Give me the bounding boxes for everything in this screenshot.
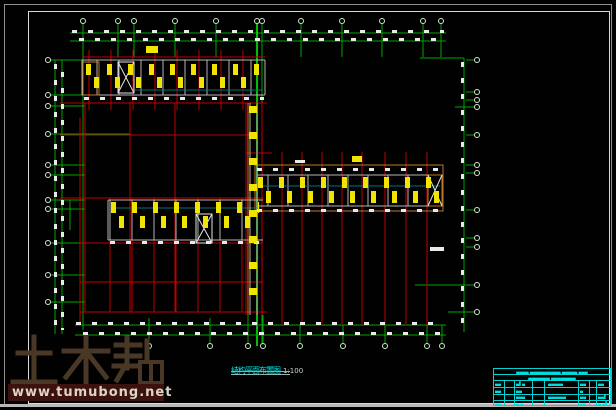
title-block-cell: ▄▄▄▄▄▄ xyxy=(548,394,566,399)
title-block-cell: ▄▄▄▄▄ xyxy=(548,381,563,386)
column-highlights xyxy=(266,191,440,203)
dim-text-row xyxy=(76,322,444,325)
title-block-cell: ▄▄▌ xyxy=(598,394,607,399)
title-block-cell: ▄▌▄ xyxy=(516,381,525,386)
dim-text-row xyxy=(79,38,444,41)
dim-text-row xyxy=(72,30,444,33)
title-block-cell: ▄▄ xyxy=(598,381,604,386)
dim-text-row xyxy=(84,97,264,100)
column-highlight xyxy=(146,46,158,53)
column-highlight xyxy=(352,156,362,162)
title-block-cell: ▄▄ xyxy=(495,381,501,386)
dim-text-row xyxy=(257,209,441,212)
dim-text-row xyxy=(110,241,262,244)
title-block-grid: ▄▄ ▄▌▄ ▄▄▄▄▄ ▄▄ ▄▄ ▄▄ ▄▄ ▄ ▄▄▄ ▄▄▄▄▄▄ ▄▄… xyxy=(494,381,610,406)
title-block-cell: ▄ ▄ xyxy=(516,401,523,406)
title-block-cell: ▄▄ xyxy=(495,401,501,406)
title-block-cell: ▄▄ xyxy=(580,401,586,406)
column-highlights xyxy=(86,64,262,75)
dim-text-column xyxy=(54,64,57,330)
dim-text-column xyxy=(461,62,464,326)
dim-text-row xyxy=(257,168,441,171)
wing-middle xyxy=(255,165,443,211)
title-underline xyxy=(231,371,290,372)
axis-bubbles-right xyxy=(475,58,480,315)
title-block-cell: ▄ xyxy=(580,388,583,393)
dim-text xyxy=(295,160,305,163)
title-block-cell: ▄▄ xyxy=(516,388,522,393)
drawing-title: 结构平面布置图1:100 xyxy=(231,358,351,377)
title-underline xyxy=(231,374,290,375)
title-block: ▄▄▄▄ ▄▄▄▄▄▄▄▄▄▄ ▄▄▄▄▄ ▄▄▄ ▄▄▄▄▄▄▄ ▄▄▄▄▄▄… xyxy=(493,368,611,406)
axis-bubbles-bottom xyxy=(147,344,445,349)
watermark-url: www.tumubong.net xyxy=(8,384,164,401)
column-highlights xyxy=(249,106,257,310)
axis-bubbles-left xyxy=(46,58,51,305)
title-block-cell: ▄ ▄▌ xyxy=(598,401,609,406)
column-highlights xyxy=(94,77,262,88)
dim-text-row xyxy=(83,332,444,335)
title-block-cell: ▄▄ xyxy=(580,381,586,386)
axis-grid-bottom xyxy=(75,315,446,343)
dim-text xyxy=(430,247,444,251)
dim-text-column xyxy=(61,72,64,330)
column-highlights xyxy=(119,216,259,228)
axis-bubbles-top xyxy=(81,19,444,24)
title-block-cell: ▄▄ xyxy=(580,394,586,399)
column-highlights xyxy=(111,202,259,213)
watermark-brand-glyphs xyxy=(13,337,162,384)
column-highlights xyxy=(258,177,440,188)
cad-viewport[interactable]: 结构平面布置图1:100 www.tumubong.net ▄▄▄▄ ▄▄▄▄▄… xyxy=(0,0,616,410)
floor-plan-svg xyxy=(0,0,616,410)
title-block-cell: ▄▄▄ xyxy=(516,394,525,399)
title-block-cell: ▄▄ xyxy=(495,388,501,393)
